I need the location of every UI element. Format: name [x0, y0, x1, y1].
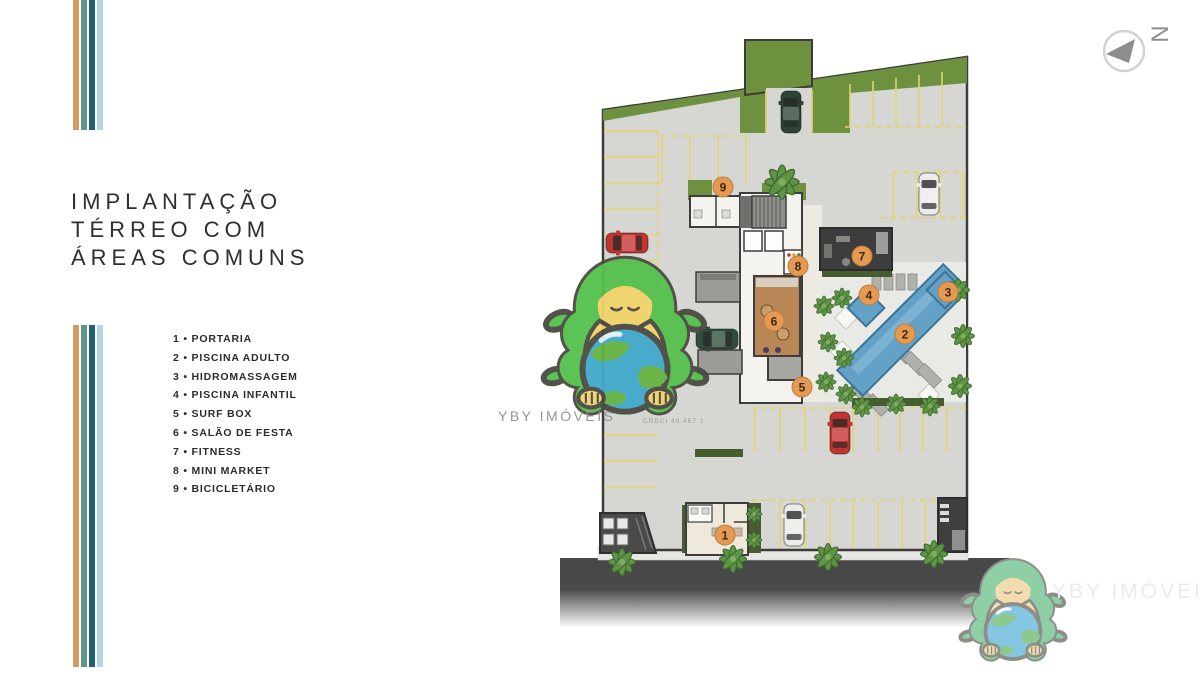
svg-text:1: 1: [722, 528, 729, 542]
car-white-bottom: [782, 504, 807, 546]
svg-text:7: 7: [859, 249, 866, 263]
car-red-left: [606, 231, 648, 256]
plan-marker-6: 6: [764, 311, 784, 331]
watermark-corner-text: YBY IMÓVEIS: [1052, 580, 1200, 603]
plan-marker-4: 4: [859, 285, 879, 305]
plan-marker-2: 2: [895, 324, 915, 344]
stairs: [752, 196, 786, 228]
plan-marker-9: 9: [713, 177, 733, 197]
watermark-center-text: YBY IMÓVEIS: [498, 408, 616, 424]
watermark-corner: YBY IMÓVEIS: [959, 560, 1200, 660]
site-plan: CRECI 40.457 J 123456789 YBY IMÓVEIS YBY…: [0, 0, 1200, 674]
svg-text:5: 5: [799, 380, 806, 394]
elevator: [744, 231, 762, 251]
page: IMPLANTAÇÃO TÉRREO COM ÁREAS COMUNS 1 • …: [0, 0, 1200, 674]
north-indicator: N: [1104, 25, 1173, 71]
plan-marker-7: 7: [852, 246, 872, 266]
car-white-right: [917, 173, 942, 215]
core-tower: [740, 193, 802, 403]
plan-marker-1: 1: [715, 525, 735, 545]
car-dark-top: [779, 91, 804, 133]
svg-text:4: 4: [866, 288, 873, 302]
plan-marker-8: 8: [788, 256, 808, 276]
svg-text:2: 2: [902, 327, 909, 341]
plan-marker-5: 5: [792, 377, 812, 397]
bathrooms-block: [690, 196, 742, 227]
north-label: N: [1146, 25, 1173, 42]
elevator: [765, 231, 783, 251]
svg-text:9: 9: [720, 180, 727, 194]
svg-text:8: 8: [795, 259, 802, 273]
surf-box: [768, 356, 802, 380]
lawn-verge: [745, 40, 812, 95]
car-red-bottom: [828, 412, 853, 454]
svg-text:3: 3: [945, 285, 952, 299]
svg-text:6: 6: [771, 314, 778, 328]
plan-marker-3: 3: [938, 282, 958, 302]
creci-text: CRECI 40.457 J: [643, 418, 704, 425]
